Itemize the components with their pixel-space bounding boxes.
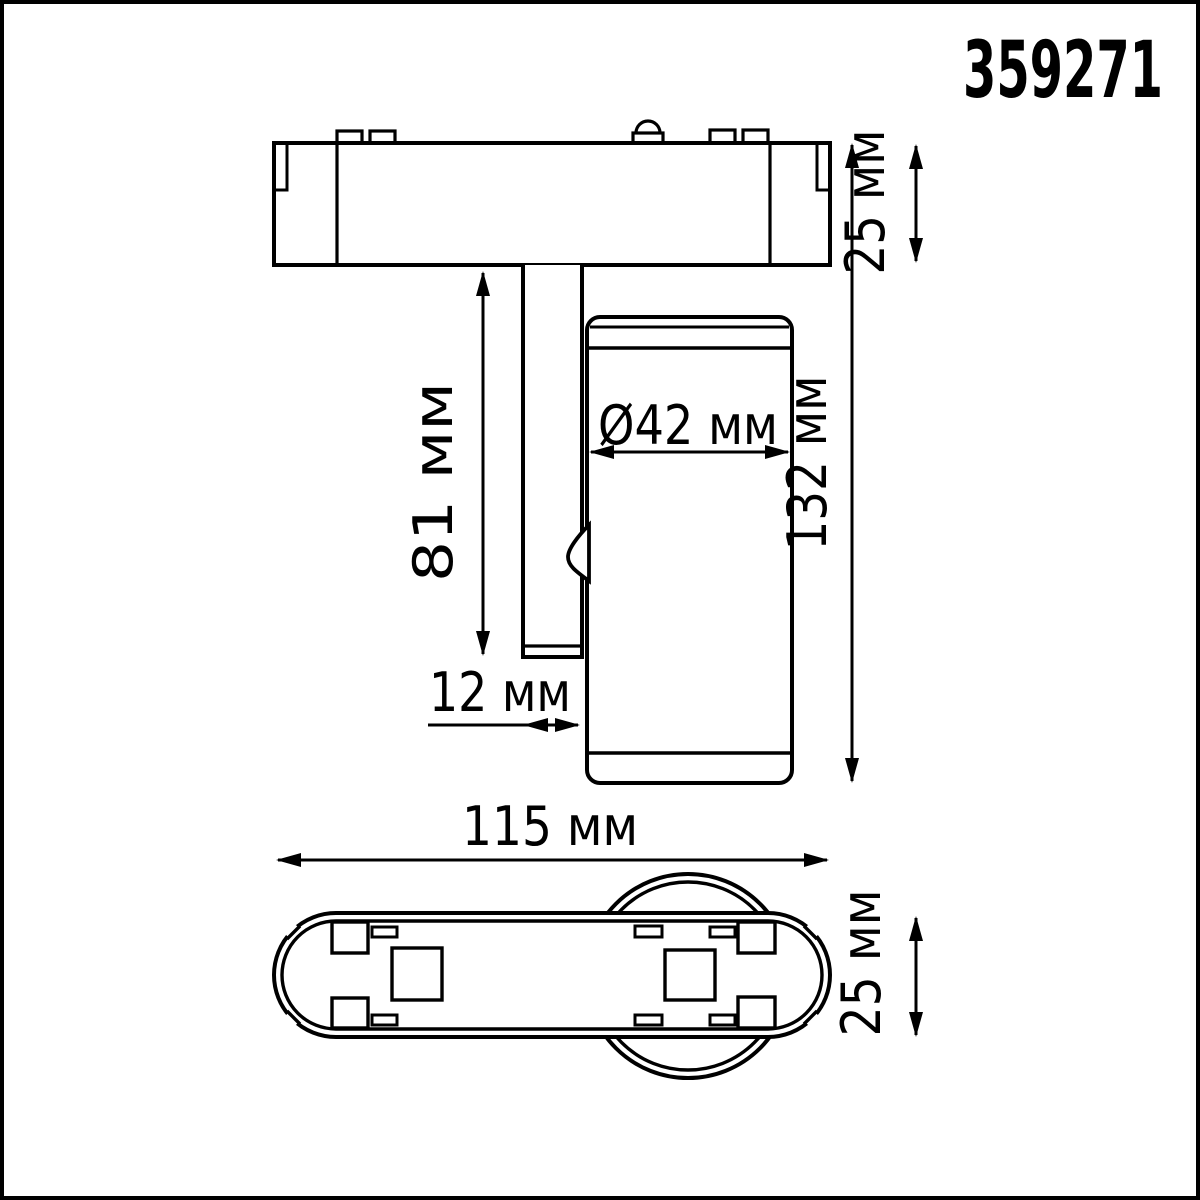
base-detail-magnet <box>665 950 715 1000</box>
side-view: 132 мм 25 мм 81 мм Ø42 мм 12 мм <box>274 121 923 783</box>
dim-label-stem-offset: 12 мм <box>429 661 571 724</box>
technical-drawing-page: 359271 132 мм 25 мм <box>0 0 1200 1200</box>
product-code: 359271 <box>963 26 1163 116</box>
dim-label-total-height: 132 мм <box>776 376 839 551</box>
base-detail-slot <box>635 926 662 937</box>
base-detail-square <box>332 998 368 1028</box>
base-detail-square <box>738 922 775 953</box>
track-adapter-outline <box>274 143 830 265</box>
arrowhead-left-icon <box>276 853 301 867</box>
arrowhead-up-icon <box>476 271 490 296</box>
arrowhead-down-icon <box>845 758 859 783</box>
base-detail-slot <box>635 1015 662 1025</box>
dim-label-base-length: 115 мм <box>462 795 638 858</box>
base-detail-magnet <box>392 948 442 1000</box>
arrowhead-down-icon <box>909 238 923 263</box>
base-detail-square <box>332 922 368 953</box>
arrowhead-down-icon <box>476 631 490 656</box>
arrowhead-down-icon <box>909 1012 923 1037</box>
base-detail-square <box>738 997 775 1028</box>
stem-outline <box>523 265 582 657</box>
base-detail-slot <box>710 1015 735 1025</box>
base-detail-slot <box>372 1015 397 1025</box>
dimension-drawing: 359271 132 мм 25 мм <box>0 0 1200 1200</box>
base-detail-slot <box>372 927 397 937</box>
dim-label-adapter-height: 25 мм <box>834 130 897 275</box>
arrowhead-up-icon <box>909 144 923 169</box>
dome-button <box>636 121 660 133</box>
dim-label-head-diameter: Ø42 мм <box>598 394 778 457</box>
base-detail-slot <box>710 927 735 937</box>
arrowhead-up-icon <box>909 916 923 941</box>
dim-label-stem-length: 81 мм <box>402 382 465 582</box>
lamp-head-outline <box>587 317 792 783</box>
dim-label-base-width: 25 мм <box>830 890 893 1037</box>
arrowhead-right-icon <box>804 853 829 867</box>
bottom-view: 115 мм 25 мм <box>274 795 923 1078</box>
